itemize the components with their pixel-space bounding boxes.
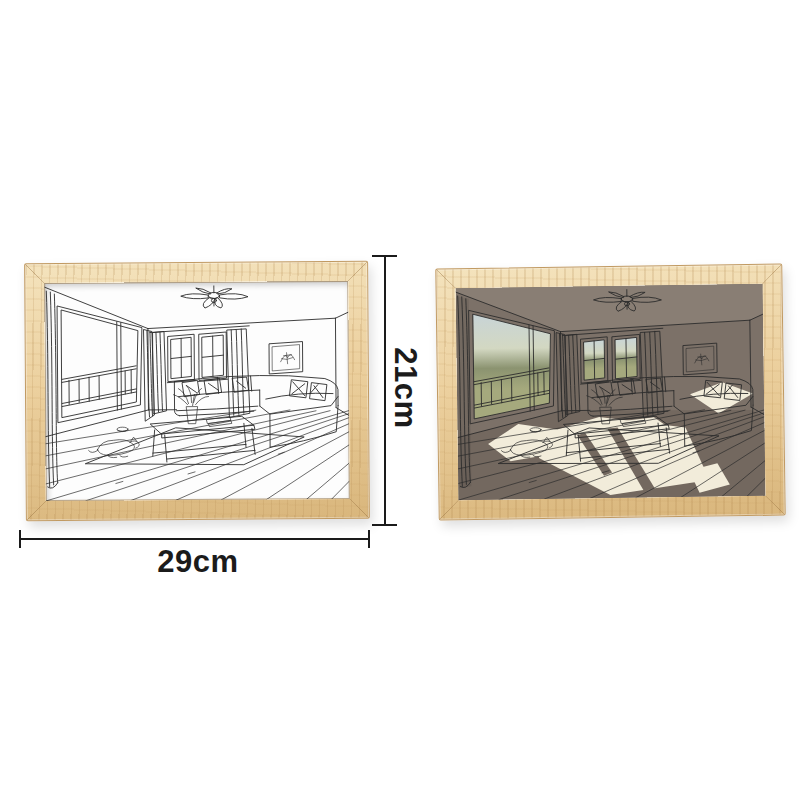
frame-unlit bbox=[24, 261, 370, 521]
width-dimension-cap-right bbox=[368, 530, 370, 548]
width-dimension-cap-left bbox=[19, 530, 21, 548]
picture-lit bbox=[456, 284, 766, 500]
height-dimension-cap-bottom bbox=[372, 524, 397, 526]
width-dimension-label: 29cm bbox=[157, 544, 238, 580]
frame-lit bbox=[435, 264, 785, 521]
height-dimension-cap-top bbox=[372, 255, 397, 257]
room-lit-drawing bbox=[456, 284, 766, 500]
height-dimension-line bbox=[384, 256, 386, 526]
height-dimension-label: 21cm bbox=[387, 347, 423, 428]
room-line-drawing bbox=[44, 281, 350, 501]
width-dimension-line bbox=[20, 538, 370, 540]
picture-unlit bbox=[44, 281, 350, 501]
product-dimension-image: { "dimensions": { "height_label": "21cm"… bbox=[0, 0, 800, 800]
